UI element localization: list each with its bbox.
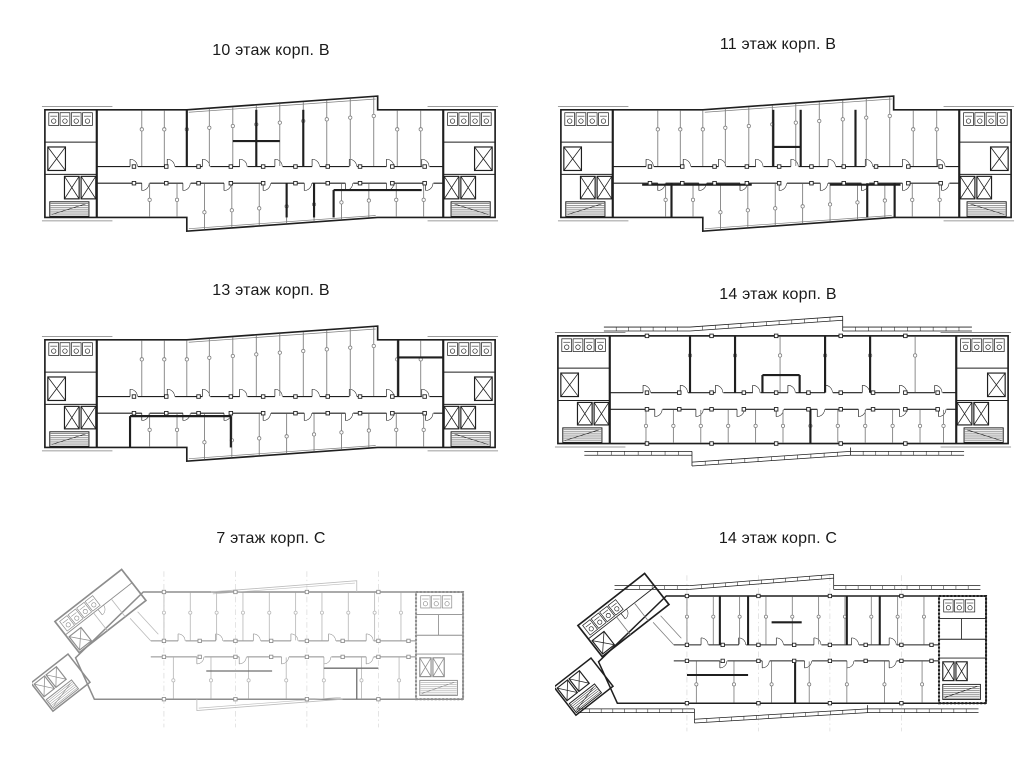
floor-plan-drawing-14-b [553,314,1013,484]
plan-caption: 11 этаж корп. B [543,34,1013,56]
plan-cell-7-c: 7 этаж корп. C [30,528,512,734]
plan-cell-11-b: 11 этаж корп. B [543,34,1013,250]
plan-cell-10-b: 10 этаж корп. B [30,40,512,250]
plan-caption: 14 этаж корп. B [543,284,1013,306]
floor-plan-drawing-10-b [40,88,500,250]
plan-caption: 7 этаж корп. C [30,528,512,550]
floor-plan-drawing-13-b [40,318,500,480]
floor-plan-sheet: { "page": {"background": "#ffffff"}, "co… [0,0,1024,768]
plan-cell-14-b: 14 этаж корп. B [543,284,1013,484]
plan-caption: 10 этаж корп. B [30,40,512,62]
plan-caption: 13 этаж корп. B [30,280,512,302]
plan-caption: 14 этаж корп. C [543,528,1013,550]
plan-cell-13-b: 13 этаж корп. B [30,280,512,480]
floor-plan-drawing-14-c [555,564,1007,738]
floor-plan-drawing-7-c [32,560,484,734]
floor-plan-drawing-11-b [556,88,1016,250]
plan-cell-14-c: 14 этаж корп. C [543,528,1013,738]
